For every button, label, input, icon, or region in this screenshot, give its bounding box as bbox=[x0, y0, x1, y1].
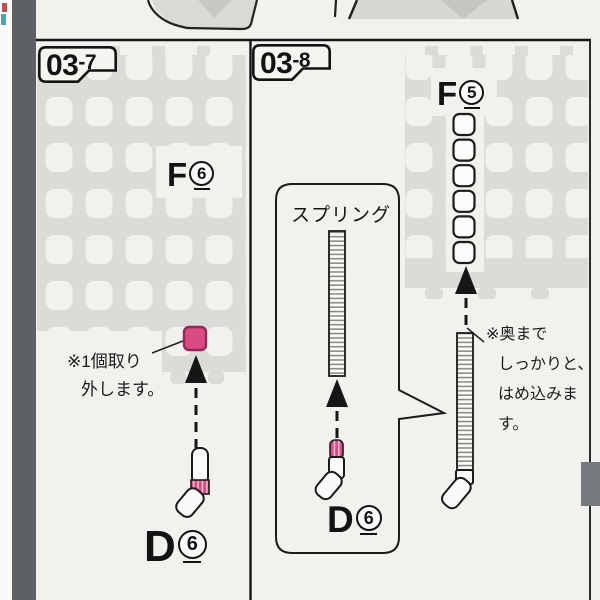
step-number-sub: -7 bbox=[78, 51, 96, 73]
page-edge-white bbox=[0, 0, 12, 600]
part-letter: D bbox=[144, 525, 176, 569]
note-line: はめ込みます。 bbox=[498, 380, 600, 440]
print-mark-red bbox=[2, 3, 7, 12]
runner-label-f5: F 5 bbox=[437, 77, 484, 110]
runner-f5-graphic bbox=[405, 46, 588, 299]
note-line: しっかりと、 bbox=[498, 350, 600, 380]
runner-letter: F bbox=[167, 158, 187, 191]
note-line: ※1個取り bbox=[67, 348, 164, 376]
spring-box-label: スプリング bbox=[291, 200, 391, 227]
part-letter: D bbox=[327, 501, 354, 538]
runner-number: 6 bbox=[189, 161, 214, 186]
runner-label-f6: F 6 bbox=[167, 158, 214, 191]
number-underline bbox=[464, 107, 480, 109]
part-d6-with-spring-graphic bbox=[439, 470, 473, 511]
step-badge-03-7: 03-7 bbox=[46, 51, 96, 81]
note-remove-part: ※1個取り 外します。 bbox=[67, 348, 164, 404]
number-underline bbox=[194, 188, 210, 190]
number-underline bbox=[360, 533, 377, 535]
number-underline bbox=[183, 561, 201, 563]
runner-letter: F bbox=[437, 77, 457, 110]
circled-number: 6 bbox=[189, 158, 214, 190]
circled-number: 6 bbox=[356, 501, 382, 535]
page-spine-shadow bbox=[12, 0, 36, 600]
part-number: 6 bbox=[178, 530, 207, 559]
note-line: ※奥まで bbox=[486, 320, 600, 350]
part-d6-left-graphic bbox=[173, 448, 209, 520]
part-label-d6-middle: D 6 bbox=[327, 501, 382, 538]
step-number-main: 03 bbox=[46, 51, 78, 81]
note-push-firmly: ※奥まで しっかりと、 はめ込みます。 bbox=[486, 320, 600, 440]
runner-number: 5 bbox=[459, 80, 484, 105]
spring-part-graphic bbox=[329, 231, 345, 376]
page-graphics bbox=[0, 0, 600, 600]
previous-step-remnant bbox=[148, 0, 518, 29]
step-badge-03-8: 03-8 bbox=[260, 49, 310, 79]
step-number-main: 03 bbox=[260, 49, 292, 79]
runner-f6-graphic bbox=[37, 46, 246, 384]
circled-number: 6 bbox=[178, 525, 207, 563]
circled-number: 5 bbox=[459, 77, 484, 109]
print-mark-blue bbox=[1, 14, 6, 25]
highlighted-part-to-remove bbox=[184, 327, 206, 350]
manual-page: 03-7 03-8 F 6 F 5 ※1個取り 外します。 スプリング ※奥まで… bbox=[0, 0, 600, 600]
part-number: 6 bbox=[356, 505, 382, 531]
spring-installed-graphic bbox=[457, 333, 473, 473]
page-edge-tab bbox=[581, 462, 600, 506]
note-line: 外します。 bbox=[81, 376, 164, 404]
step-number-sub: -8 bbox=[292, 49, 310, 71]
part-label-d6-left: D 6 bbox=[144, 525, 207, 569]
